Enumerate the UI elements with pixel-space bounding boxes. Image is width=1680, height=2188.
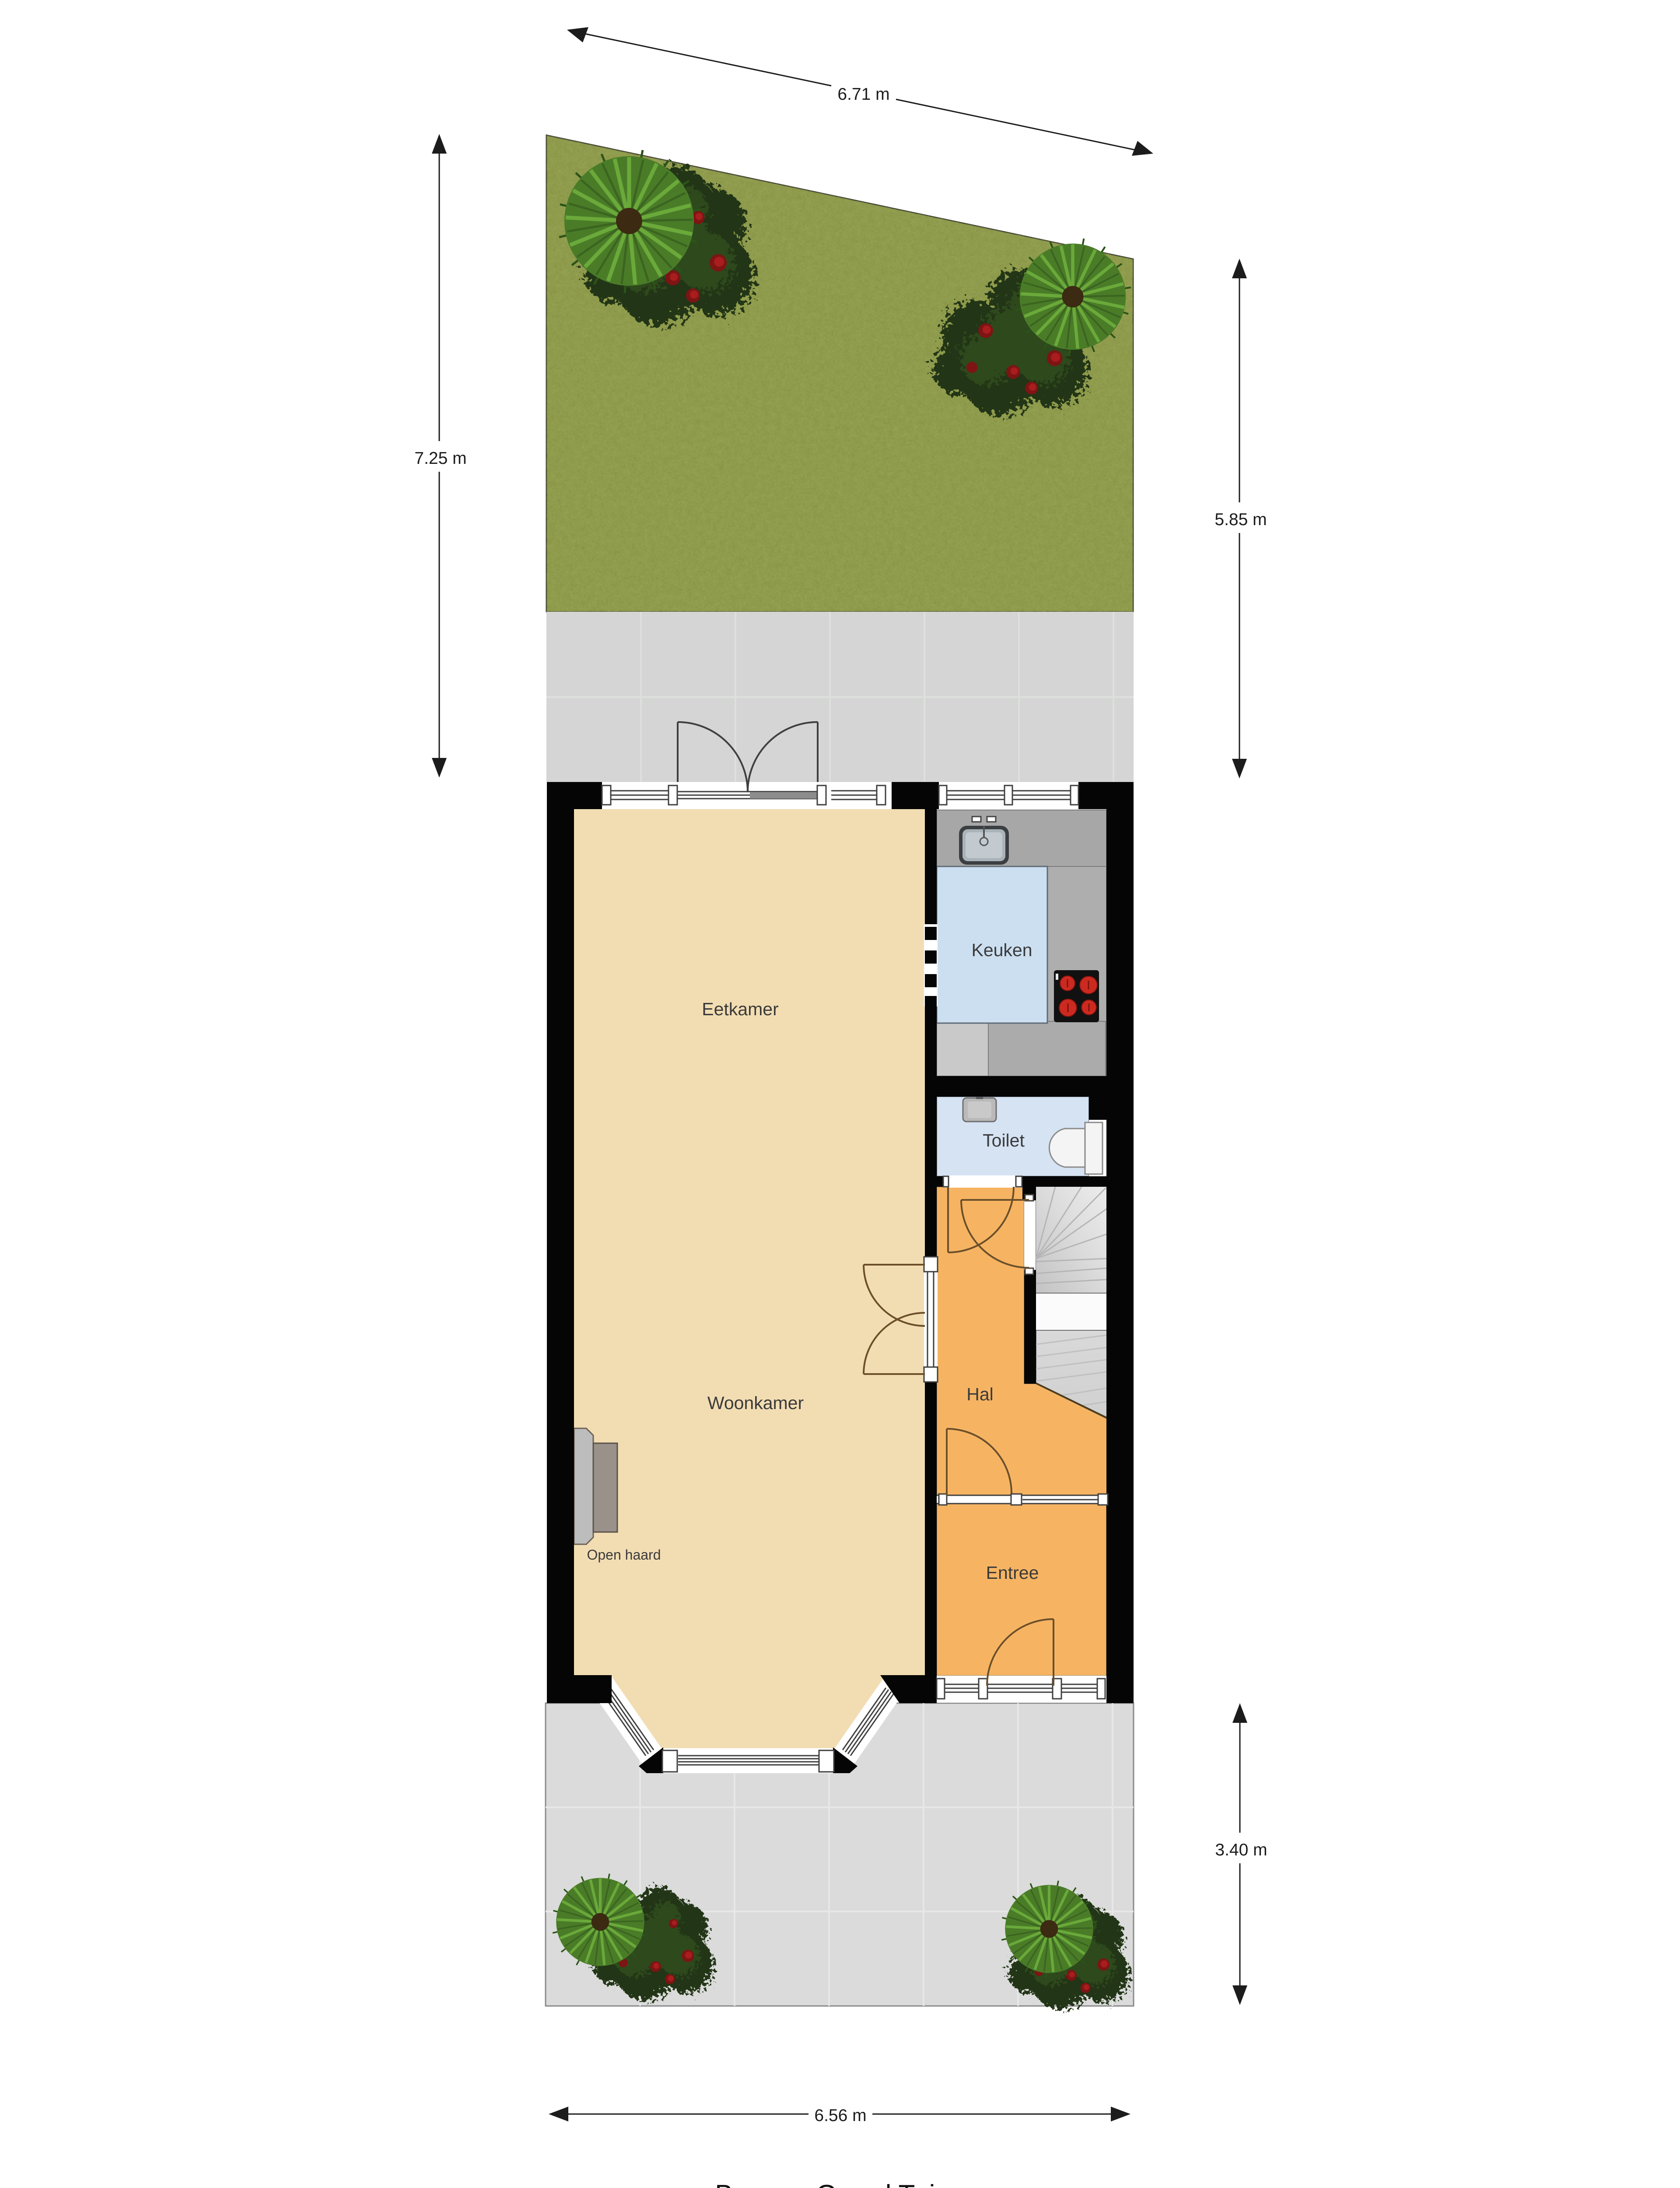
svg-text:6.56 m: 6.56 m (814, 2106, 866, 2125)
svg-text:Entree: Entree (986, 1563, 1039, 1583)
svg-text:Eetkamer: Eetkamer (702, 999, 778, 1019)
svg-text:6.71 m: 6.71 m (837, 85, 889, 104)
svg-text:Woonkamer: Woonkamer (707, 1393, 804, 1413)
svg-text:7.25 m: 7.25 m (414, 449, 466, 468)
svg-text:5.85 m: 5.85 m (1214, 510, 1267, 529)
svg-text:Open haard: Open haard (587, 1547, 661, 1563)
svg-text:Keuken: Keuken (971, 940, 1032, 960)
svg-text:Hal: Hal (966, 1384, 994, 1404)
svg-text:3.40 m: 3.40 m (1215, 1841, 1267, 1859)
svg-text:Toilet: Toilet (983, 1130, 1025, 1150)
svg-text:Begane Grond Tuin: Begane Grond Tuin (715, 2180, 950, 2188)
